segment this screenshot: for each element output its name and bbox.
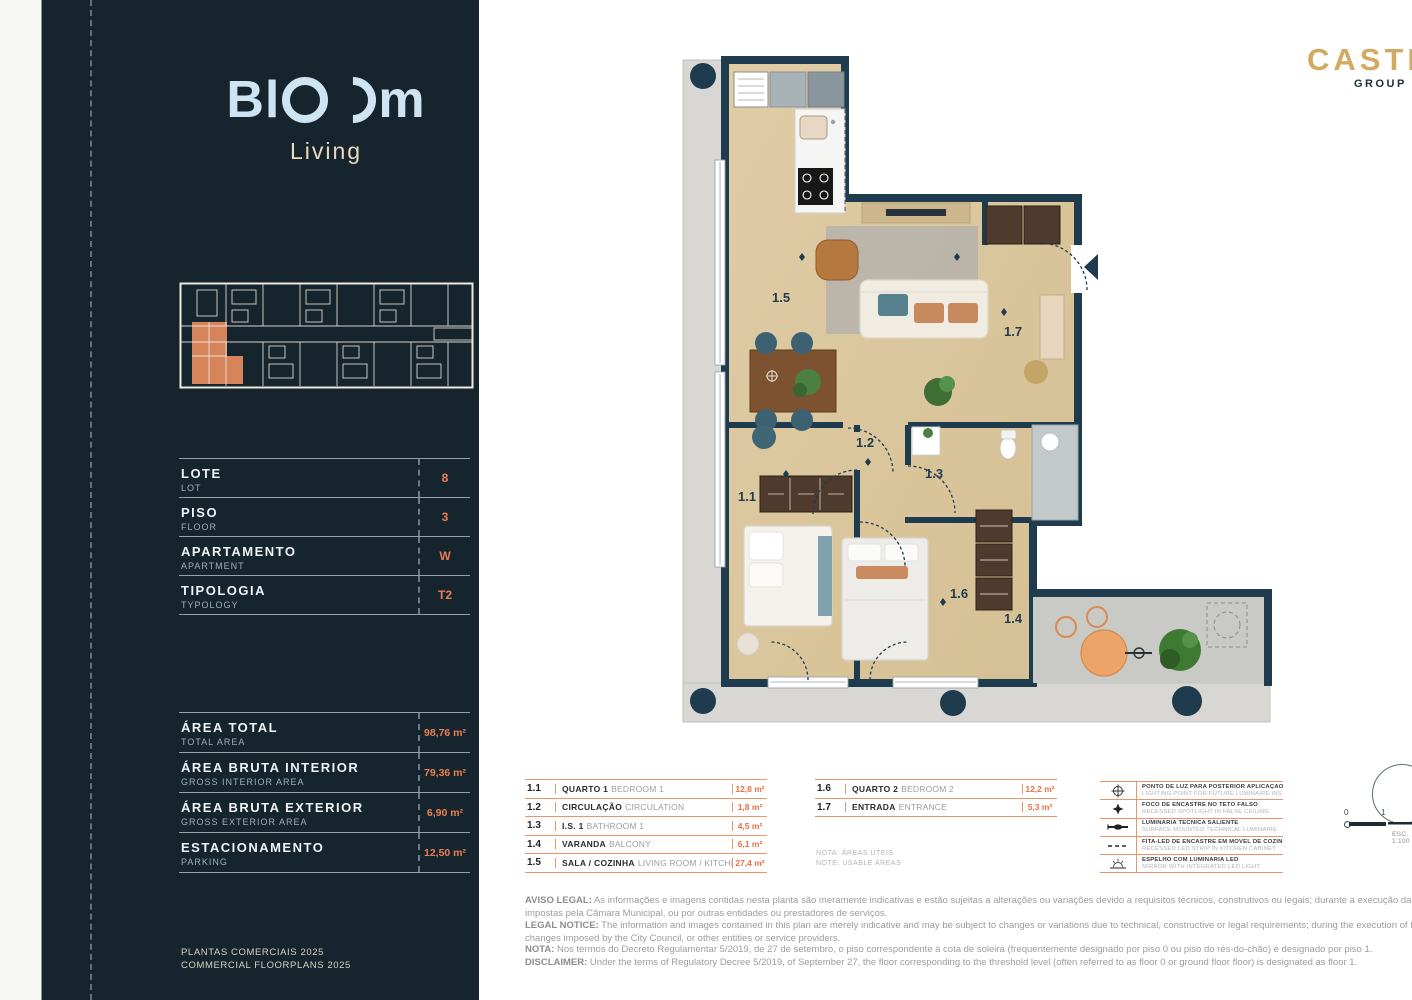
footer-line-pt: PLANTAS COMERCIAIS 2025	[181, 946, 351, 959]
unit-info-table: LOTE LOT 8 PISO FLOOR 3 APARTAMENTO APAR…	[179, 458, 470, 615]
row-sublabel: LOT	[181, 483, 418, 493]
table-row: ÁREA TOTAL TOTAL AREA 98,76 m²	[179, 713, 470, 753]
row-label: LOTE	[181, 466, 418, 481]
row-value: 12,50 m²	[418, 833, 470, 872]
legend-row: 1.4 VARANDABALCONY 6,1 m²	[525, 836, 767, 855]
bloom-logo: Bl m Living	[132, 74, 520, 165]
row-sublabel: GROSS INTERIOR AREA	[181, 777, 418, 787]
row-sublabel: PARKING	[181, 857, 418, 867]
balcony-floor	[1033, 593, 1268, 683]
room-label-1-5: 1.5	[772, 290, 790, 305]
legal-disclaimer: AVISO LEGAL: As informações e imagens co…	[525, 895, 1412, 945]
floor-numbering-note: NOTA: Nos termos do Decreto Regulamentar…	[525, 944, 1412, 969]
symbol-row: LUMINÁRIA TÉCNICA SALIENTE SURFACE-MOUNT…	[1100, 819, 1283, 837]
areas-table: ÁREA TOTAL TOTAL AREA 98,76 m² ÁREA BRUT…	[179, 712, 470, 873]
row-sublabel: FLOOR	[181, 522, 418, 532]
row-label: ESTACIONAMENTO	[181, 840, 418, 855]
logo-text-prefix: Bl	[226, 74, 280, 126]
aviso-legal-paragraph: AVISO LEGAL: As informações e imagens co…	[525, 895, 1412, 920]
row-label: APARTAMENTO	[181, 544, 418, 559]
table-row: ÁREA BRUTA INTERIOR GROSS INTERIOR AREA …	[179, 753, 470, 793]
highlighted-unit	[192, 322, 243, 384]
lighting-point-icon	[1100, 782, 1137, 799]
scale-label-1: 1	[1381, 808, 1385, 817]
legal-notice-paragraph: LEGAL NOTICE: The information and images…	[525, 920, 1412, 945]
recessed-spotlight-icon	[1100, 800, 1137, 817]
row-value: 6,90 m²	[418, 793, 470, 832]
footer-line-en: COMMERCIAL FLOORPLANS 2025	[181, 959, 351, 972]
usable-areas-note: NOTA: ÁREAS ÚTEIS NOTE: USABLE AREAS	[816, 849, 901, 868]
row-sublabel: GROSS EXTERIOR AREA	[181, 817, 418, 827]
room-label-1-3: 1.3	[925, 466, 943, 481]
nota-paragraph: NOTA: Nos termos do Decreto Regulamentar…	[525, 944, 1412, 957]
scale-label-0: 0	[1344, 808, 1348, 817]
row-sublabel: APARTMENT	[181, 561, 418, 571]
mirror-led-icon	[1100, 855, 1137, 872]
row-value: T2	[418, 576, 470, 614]
table-row: ÁREA BRUTA EXTERIOR GROSS EXTERIOR AREA …	[179, 793, 470, 833]
row-value: 8	[418, 459, 470, 497]
room-legend-table-1: 1.1 QUARTO 1BEDROOM 1 12,8 m² 1.2 CIRCUL…	[525, 779, 767, 873]
row-label: PISO	[181, 505, 418, 520]
symbol-row: PONTO DE LUZ PARA POSTERIOR APLICAÇÃO DE…	[1100, 782, 1283, 800]
sidebar-footer: PLANTAS COMERCIAIS 2025 COMMERCIAL FLOOR…	[181, 946, 351, 972]
row-sublabel: TOTAL AREA	[181, 737, 418, 747]
room-label-1-6: 1.6	[950, 586, 968, 601]
table-row: TIPOLOGIA TYPOLOGY T2	[179, 576, 470, 615]
legend-row: 1.6 QUARTO 2BEDROOM 2 12,2 m²	[815, 780, 1057, 799]
row-label: TIPOLOGIA	[181, 583, 418, 598]
table-row: APARTAMENTO APARTMENT W	[179, 537, 470, 576]
logo-subtitle: Living	[132, 138, 520, 165]
symbol-row: ESPELHO COM LUMINÁRIA LED MIRROR WITH IN…	[1100, 855, 1283, 873]
lighting-symbol-legend: PONTO DE LUZ PARA POSTERIOR APLICAÇÃO DE…	[1100, 781, 1283, 873]
castro-group-logo: CASTRO	[1307, 42, 1412, 78]
row-value: W	[418, 537, 470, 575]
room-label-1-4: 1.4	[1004, 611, 1023, 626]
row-sublabel: TYPOLOGY	[181, 600, 418, 610]
scale-ratio-label: ESC. 1:100	[1392, 831, 1412, 845]
room-label-1-7: 1.7	[1004, 324, 1022, 339]
legend-row: 1.1 QUARTO 1BEDROOM 1 12,8 m²	[525, 780, 767, 799]
legend-row: 1.5 SALA / COZINHALIVING ROOM / KITCHEN …	[525, 854, 767, 873]
apartment-floor-plan: 1.5 1.7 1.1 1.2 1.3 1.6 1.4	[680, 55, 1280, 730]
page-left-margin	[0, 0, 41, 1000]
row-value: 98,76 m²	[418, 713, 470, 752]
legend-row: 1.7 ENTRADAENTRANCE 5,3 m²	[815, 799, 1057, 818]
logo-ring-icon	[282, 77, 328, 123]
scale-bar-segment	[1388, 822, 1412, 826]
castro-group-sub: GROUP	[1354, 78, 1407, 90]
floorplan-sheet: Bl m Living	[0, 0, 1412, 1000]
led-strip-icon	[1100, 837, 1137, 854]
table-row: LOTE LOT 8	[179, 459, 470, 498]
symbol-row: FITA-LED DE ENCASTRE EM MÓVEL DE COZINHA…	[1100, 837, 1283, 855]
table-row: ESTACIONAMENTO PARKING 12,50 m²	[179, 833, 470, 873]
logo-text-suffix: m	[378, 74, 425, 126]
row-label: ÁREA TOTAL	[181, 720, 418, 735]
scale-bar	[1349, 822, 1386, 826]
entry-door-recess	[1071, 245, 1087, 293]
room-label-1-2: 1.2	[856, 435, 874, 450]
symbol-row: FOCO DE ENCASTRE NO TETO FALSO RECESSED …	[1100, 800, 1283, 818]
row-value: 3	[418, 498, 470, 536]
room-legend-table-2: 1.6 QUARTO 2BEDROOM 2 12,2 m² 1.7 ENTRAD…	[815, 779, 1057, 817]
sidebar-fold-dashed-line	[90, 0, 92, 1000]
disclaimer-paragraph: DISCLAIMER: Under the terms of Regulator…	[525, 957, 1412, 970]
table-row: PISO FLOOR 3	[179, 498, 470, 537]
sidebar: Bl m Living	[41, 0, 479, 1000]
technical-luminaire-icon	[1100, 819, 1137, 836]
legend-row: 1.3 I.S. 1BATHROOM 1 4,5 m²	[525, 817, 767, 836]
row-label: ÁREA BRUTA INTERIOR	[181, 760, 418, 775]
logo-crescent-icon	[321, 67, 386, 132]
row-value: 79,36 m²	[418, 753, 470, 792]
room-label-1-1: 1.1	[738, 489, 756, 504]
north-indicator-icon	[1372, 764, 1412, 824]
building-key-plan	[179, 282, 474, 390]
legend-row: 1.2 CIRCULAÇÃOCIRCULATION 1,8 m²	[525, 799, 767, 818]
row-label: ÁREA BRUTA EXTERIOR	[181, 800, 418, 815]
